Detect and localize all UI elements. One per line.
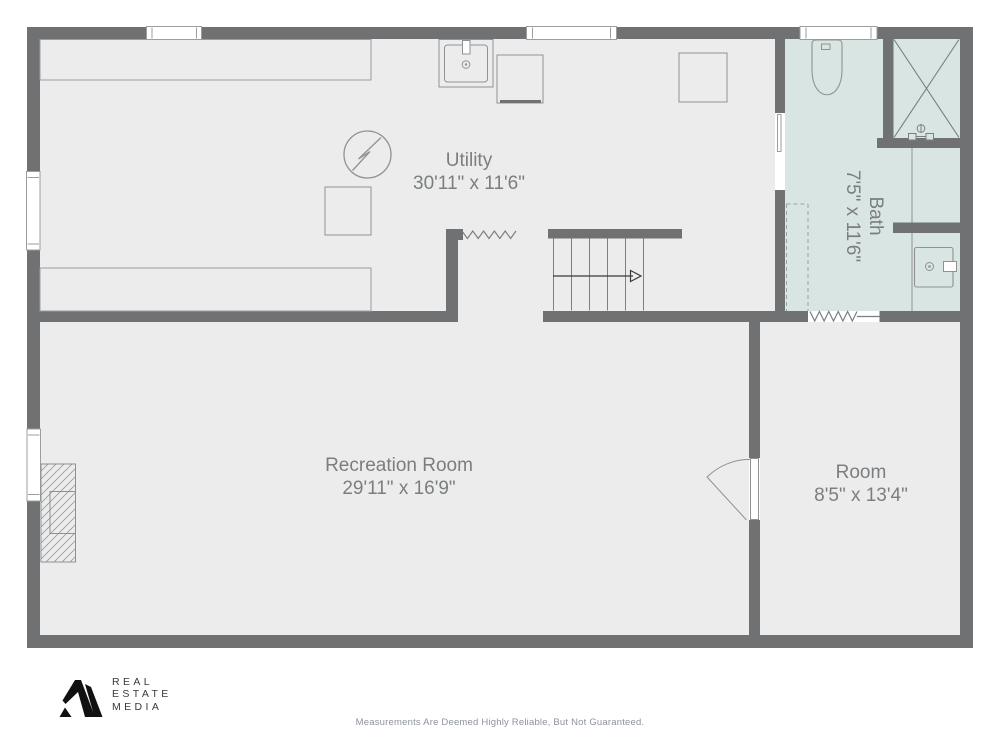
laundry-sink-icon — [439, 40, 493, 88]
wall-stair-head — [548, 229, 682, 239]
utility-room-label: Utility 30'11" x 11'6" — [413, 149, 525, 195]
brand-logo-icon — [57, 676, 107, 720]
wall-stub-cap — [446, 229, 463, 240]
room-name: Utility — [413, 149, 525, 172]
room-name: Room — [814, 461, 908, 484]
floorplan-page: Utility 30'11" x 11'6" Bath 7'5" x 11'6"… — [0, 0, 1000, 750]
logo-line: REAL — [112, 676, 172, 688]
vanity-sink-icon — [915, 248, 957, 288]
logo-line: MEDIA — [112, 701, 172, 713]
floorplan-drawing — [0, 0, 1000, 750]
room-label: Room 8'5" x 13'4" — [814, 461, 908, 507]
toilet-icon — [812, 40, 842, 95]
bath-door-leaf — [778, 115, 782, 152]
wall-bath-stub — [893, 223, 960, 234]
wall-utility-south-left — [33, 311, 458, 322]
fireplace-icon — [41, 464, 76, 562]
window-top-3 — [800, 27, 877, 40]
wall-stub-vertical — [446, 229, 458, 322]
brand-logo-text: REAL ESTATE MEDIA — [112, 676, 172, 713]
recreation-room-label: Recreation Room 29'11" x 16'9" — [325, 454, 473, 500]
room-name: Bath — [864, 170, 887, 262]
room-dimensions: 30'11" x 11'6" — [413, 172, 525, 195]
window-top-2 — [527, 27, 617, 40]
bath-room-label: Bath 7'5" x 11'6" — [841, 170, 887, 262]
washer-icon — [497, 55, 543, 103]
disclaimer-text: Measurements Are Deemed Highly Reliable,… — [0, 717, 1000, 728]
wall-stair-south — [543, 311, 810, 322]
room-dimensions: 29'11" x 16'9" — [325, 477, 473, 500]
wall-bath-west-lower — [775, 190, 785, 312]
floor-base — [27, 27, 973, 648]
window-top-1 — [147, 27, 202, 40]
wall-shower-west — [883, 39, 894, 148]
room-dimensions: 8'5" x 13'4" — [814, 484, 908, 507]
logo-line: ESTATE — [112, 688, 172, 700]
window-left-2 — [27, 429, 41, 501]
dryer-icon — [679, 53, 727, 102]
room-door-leaf — [751, 459, 759, 520]
wall-bath-west-upper — [775, 39, 785, 113]
room-name: Recreation Room — [325, 454, 473, 477]
wall-room-west-lower — [749, 520, 760, 635]
room-dimensions: 7'5" x 11'6" — [841, 170, 864, 262]
wall-bath-south-right — [880, 311, 961, 322]
window-left-1 — [27, 172, 41, 251]
wall-room-west-upper — [749, 322, 760, 458]
appliance-square-icon — [325, 187, 371, 235]
wall-shower-south — [877, 138, 960, 148]
